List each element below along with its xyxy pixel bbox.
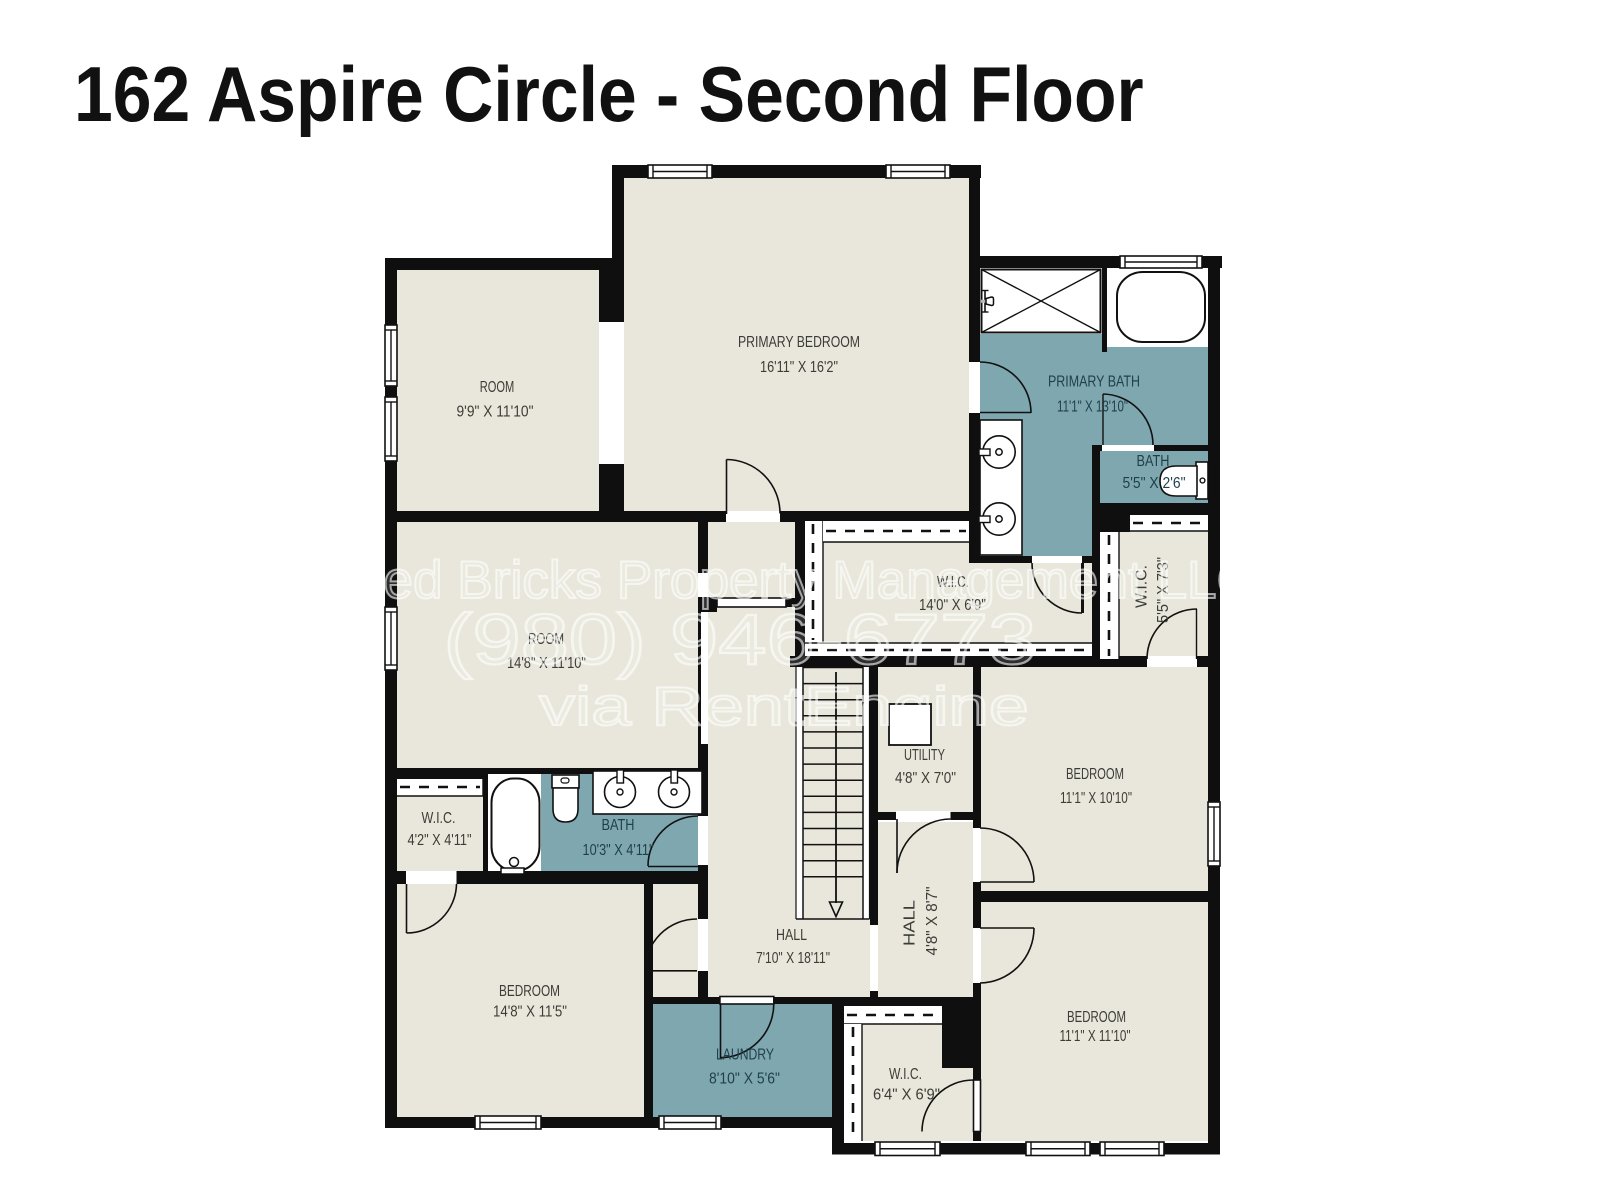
svg-text:16'11" X 16'2": 16'11" X 16'2" (760, 359, 838, 376)
svg-text:11'1" X 10'10": 11'1" X 10'10" (1060, 790, 1132, 807)
svg-text:4'8" X 7'0": 4'8" X 7'0" (895, 770, 956, 787)
svg-text:4'8" X 8'7": 4'8" X 8'7" (924, 887, 941, 956)
svg-text:8'10" X 5'6": 8'10" X 5'6" (709, 1071, 780, 1088)
svg-text:10'3" X 4'11": 10'3" X 4'11" (583, 842, 654, 859)
svg-text:W.I.C.: W.I.C. (422, 810, 456, 827)
svg-text:PRIMARY BATH: PRIMARY BATH (1048, 374, 1140, 391)
svg-text:7'10" X 18'11": 7'10" X 18'11" (756, 950, 830, 967)
svg-text:via RentEngine: via RentEngine (539, 675, 1029, 737)
svg-text:HALL: HALL (776, 927, 807, 944)
svg-text:BATH: BATH (602, 817, 635, 834)
svg-text:PRIMARY BEDROOM: PRIMARY BEDROOM (738, 334, 860, 351)
svg-text:ROOM: ROOM (480, 379, 515, 396)
svg-text:BATH: BATH (1137, 453, 1170, 470)
svg-text:BEDROOM: BEDROOM (499, 983, 560, 1000)
svg-text:UTILITY: UTILITY (904, 747, 945, 764)
svg-text:11'1" X 13'10": 11'1" X 13'10" (1057, 399, 1128, 416)
svg-text:(980) 946-6773: (980) 946-6773 (444, 601, 1037, 680)
svg-text:4'2" X 4'11": 4'2" X 4'11" (408, 832, 472, 849)
svg-text:11'1" X 11'10": 11'1" X 11'10" (1060, 1028, 1131, 1045)
svg-text:HALL: HALL (902, 900, 919, 946)
svg-text:6'4" X 6'9": 6'4" X 6'9" (873, 1086, 940, 1103)
svg-text:BEDROOM: BEDROOM (1066, 766, 1124, 783)
svg-text:5'5" X 2'6": 5'5" X 2'6" (1123, 475, 1186, 492)
svg-text:W.I.C.: W.I.C. (889, 1066, 922, 1083)
svg-text:9'9" X 11'10": 9'9" X 11'10" (457, 404, 534, 421)
svg-text:14'8" X 11'5": 14'8" X 11'5" (493, 1004, 567, 1021)
svg-text:BEDROOM: BEDROOM (1067, 1009, 1126, 1026)
svg-text:LAUNDRY: LAUNDRY (716, 1047, 774, 1064)
